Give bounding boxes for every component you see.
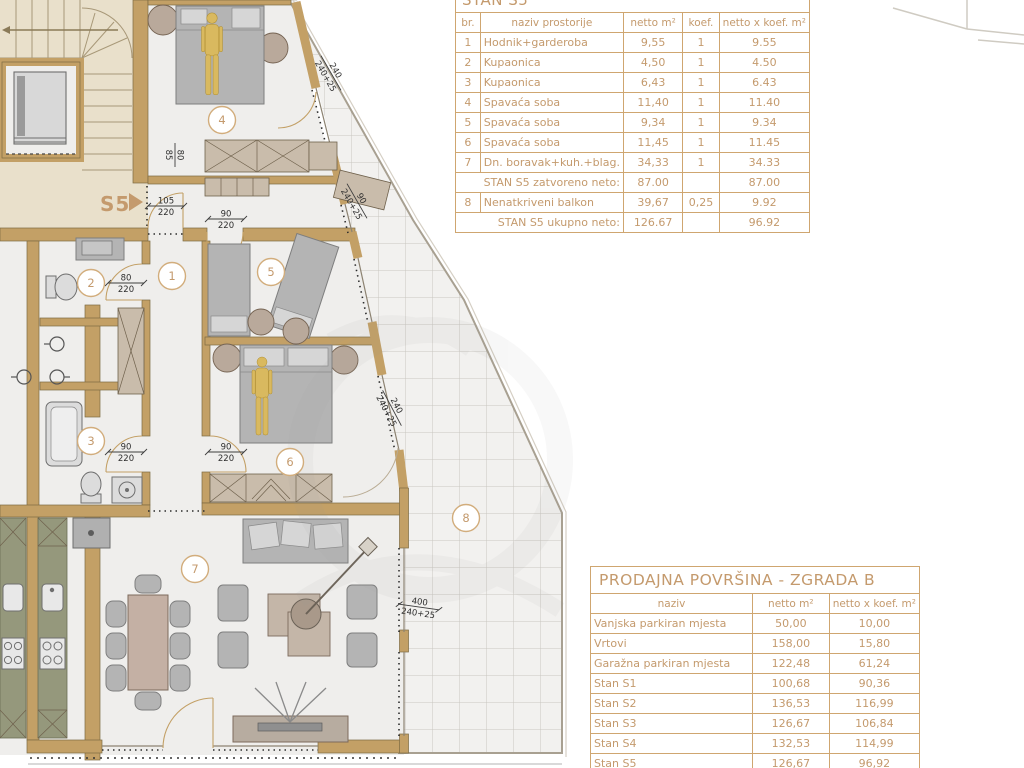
armchair	[218, 632, 248, 668]
elevator	[2, 62, 80, 158]
svg-text:4: 4	[218, 113, 225, 127]
table-row: 1Hodnik+garderoba 9,551 9.55	[456, 33, 810, 53]
table-row: 6Spavaća soba 11,451 11.45	[456, 133, 810, 153]
svg-text:220: 220	[218, 454, 234, 464]
room-marker-8: 8	[453, 505, 480, 532]
room-marker-6: 6	[277, 449, 304, 476]
table-row: Stan S2 136,53 116,99	[591, 694, 920, 714]
table-row: Stan S5 126,67 96,92	[591, 754, 920, 768]
table-row: 3Kupaonica 6,431 6.43	[456, 73, 810, 93]
svg-text:2: 2	[87, 276, 94, 290]
table-row: Stan S1 100,68 90,36	[591, 674, 920, 694]
table-row: Garažna parkiran mjesta 122,48 61,24	[591, 654, 920, 674]
col-header-koef: koef.	[683, 13, 719, 33]
svg-text:1: 1	[168, 269, 175, 283]
svg-text:220: 220	[158, 208, 174, 218]
col-header-naziv: naziv	[591, 594, 753, 614]
table-row: Vanjska parkiran mjesta 50,00 10,00	[591, 614, 920, 634]
room-marker-2: 2	[78, 270, 105, 297]
col-header-total: netto x koef. m²	[829, 594, 919, 614]
room-marker-3: 3	[78, 428, 105, 455]
prodajna-povrsina-table: PRODAJNA POVRŠINA - ZGRADA B naziv netto…	[590, 566, 920, 768]
col-header-naziv: naziv prostorije	[480, 13, 623, 33]
svg-text:7: 7	[191, 562, 198, 576]
table-row: 7Dn. boravak+kuh.+blag. 34,331 34.33	[456, 153, 810, 173]
svg-text:80: 80	[121, 274, 132, 284]
stan-s5-table: STAN S5 br. naziv prostorije netto m² ko…	[455, 0, 810, 233]
svg-text:90: 90	[221, 210, 232, 220]
table-row: 2Kupaonica 4,501 4.50	[456, 53, 810, 73]
floorplan-page: S5 105220 90220 80220 90220 90220 240240…	[0, 0, 1024, 768]
stove	[40, 638, 65, 669]
tv	[258, 723, 322, 731]
armchair	[218, 585, 248, 621]
table-row: Vrtovi 158,00 15,80	[591, 634, 920, 654]
svg-text:90: 90	[221, 443, 232, 453]
svg-text:6: 6	[286, 455, 293, 469]
table-row: 8Nenatkriveni balkon 39,670,25 9.92	[456, 193, 810, 213]
svg-text:105: 105	[158, 197, 174, 207]
svg-text:85: 85	[163, 150, 173, 161]
col-header-netto: netto m²	[752, 594, 829, 614]
table-row: 4Spavaća soba 11,401 11.40	[456, 93, 810, 113]
armchair	[347, 633, 377, 667]
room-marker-5: 5	[258, 259, 285, 286]
col-header-br: br.	[456, 13, 481, 33]
svg-text:80: 80	[175, 150, 185, 161]
svg-text:8: 8	[462, 511, 469, 525]
prodajna-table-title: PRODAJNA POVRŠINA - ZGRADA B	[590, 566, 920, 594]
table-total-row: STAN S5 ukupno neto: 126.67 96.92	[456, 213, 810, 233]
dining-table	[128, 595, 168, 690]
col-header-total: netto x koef. m²	[719, 13, 809, 33]
svg-text:3: 3	[87, 434, 94, 448]
col-header-netto: netto m²	[623, 13, 682, 33]
table-header-row: br. naziv prostorije netto m² koef. nett…	[456, 13, 810, 33]
svg-text:220: 220	[118, 454, 134, 464]
table-subtotal-row: STAN S5 zatvoreno neto: 87.00 87.00	[456, 173, 810, 193]
room-marker-7: 7	[182, 556, 209, 583]
room-marker-1: 1	[159, 263, 186, 290]
svg-text:S5: S5	[100, 192, 130, 216]
table-row: Stan S4 132,53 114,99	[591, 734, 920, 754]
svg-text:220: 220	[218, 221, 234, 231]
table-header-row: naziv netto m² netto x koef. m²	[591, 594, 920, 614]
svg-text:90: 90	[121, 443, 132, 453]
svg-text:5: 5	[267, 265, 274, 279]
table-row: Stan S3 126,67 106,84	[591, 714, 920, 734]
table-row: 5Spavaća soba 9,341 9.34	[456, 113, 810, 133]
room-marker-4: 4	[209, 107, 236, 134]
svg-text:220: 220	[118, 285, 134, 295]
